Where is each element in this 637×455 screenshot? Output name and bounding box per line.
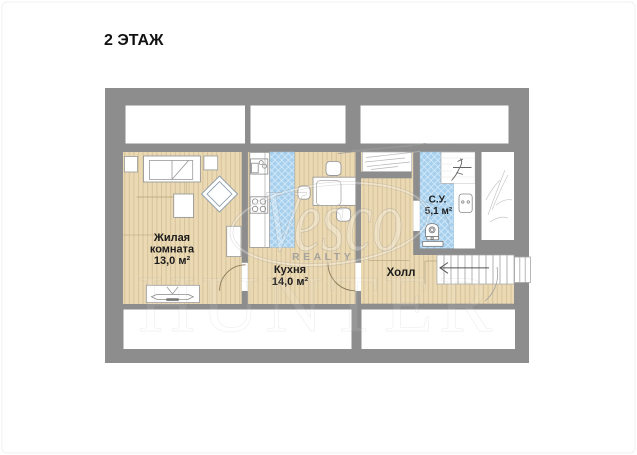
svg-text:2 ЭТАЖ: 2 ЭТАЖ xyxy=(104,32,164,49)
svg-text:HUNTER: HUNTER xyxy=(138,261,498,349)
svg-text:С.У.: С.У. xyxy=(429,195,447,206)
svg-text:Жилая: Жилая xyxy=(153,232,190,244)
svg-text:комната: комната xyxy=(150,244,195,256)
